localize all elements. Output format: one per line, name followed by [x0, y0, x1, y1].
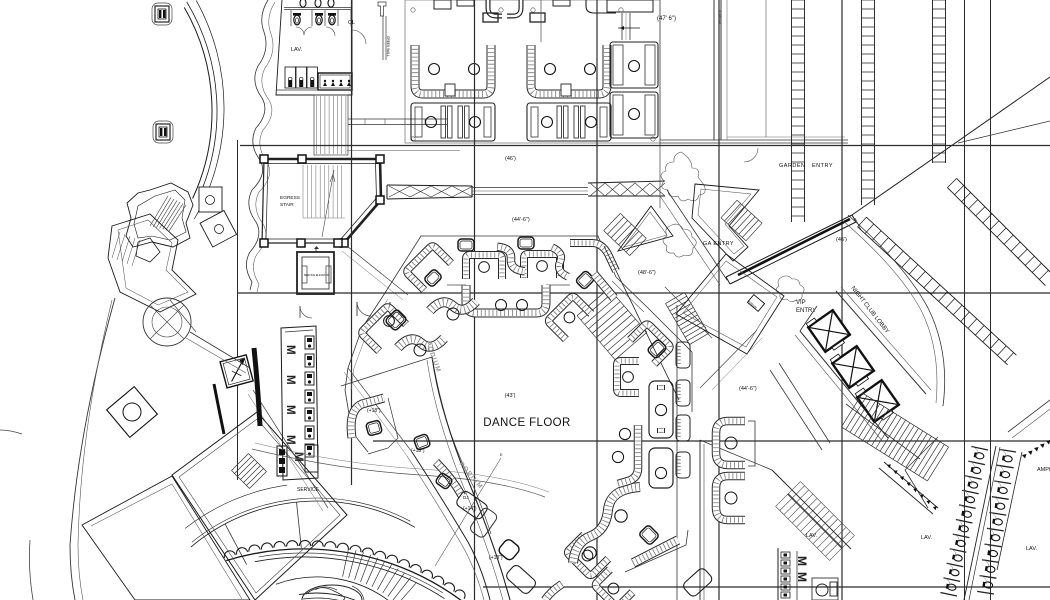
svg-text:GREEN WALL: GREEN WALL: [386, 36, 390, 57]
svg-text:SERVICE ELEVATOR: SERVICE ELEVATOR: [304, 273, 330, 277]
svg-text:SERVICE: SERVICE: [297, 487, 320, 493]
svg-text:LAV.: LAV.: [806, 533, 817, 539]
svg-text:LAV.: LAV.: [921, 535, 932, 541]
svg-text:GA ENTRY: GA ENTRY: [703, 241, 734, 247]
svg-text:(46'): (46'): [836, 237, 847, 243]
svg-text:VIP: VIP: [796, 300, 806, 306]
svg-text:(43'): (43'): [505, 393, 516, 399]
svg-text:M: M: [795, 572, 809, 582]
svg-text:M: M: [795, 556, 809, 566]
svg-text:GARDEN: GARDEN: [779, 163, 806, 169]
svg-text:LAV.: LAV.: [1026, 546, 1037, 552]
svg-text:DANCE FLOOR: DANCE FLOOR: [483, 417, 570, 429]
svg-text:M: M: [284, 375, 296, 385]
svg-text:LAV.: LAV.: [291, 47, 302, 53]
svg-text:(+18"): (+18"): [489, 555, 503, 561]
svg-text:M: M: [284, 405, 296, 415]
svg-text:M: M: [284, 435, 296, 445]
svg-text:(+18"): (+18"): [367, 408, 381, 414]
svg-text:(44'-6"): (44'-6"): [739, 386, 757, 392]
svg-text:(46'): (46'): [505, 156, 516, 162]
svg-text:AMPH: AMPH: [1037, 467, 1050, 473]
svg-text:(48'-6"): (48'-6"): [638, 270, 656, 276]
svg-text:EGRESS: EGRESS: [280, 195, 300, 201]
svg-text:(+14"): (+14"): [463, 506, 477, 512]
svg-text:E: E: [500, 452, 503, 457]
svg-text:(44'-6"): (44'-6"): [512, 217, 530, 223]
svg-text:ENTRY: ENTRY: [812, 163, 833, 169]
svg-text:STAIR: STAIR: [280, 202, 294, 208]
svg-text:M: M: [284, 345, 296, 355]
svg-text:(47' 6"): (47' 6"): [657, 16, 676, 22]
svg-text:DJ: DJ: [463, 495, 469, 500]
